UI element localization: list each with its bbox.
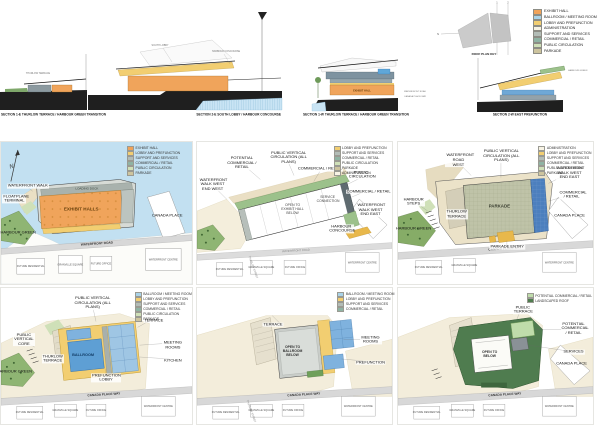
legend-label: LOBBY AND PREFUNCTION: [346, 297, 391, 302]
key-mark: 1: [496, 0, 498, 4]
legend-label: SUPPORT AND SERVICES: [136, 156, 178, 161]
callout: THURLOW TERRACE: [42, 354, 64, 363]
panel-legend: LOBBY AND PREFUNCTION SUPPORT AND SERVIC…: [334, 146, 387, 176]
legend-label: LOBBY AND PREFUNCTION: [143, 297, 188, 302]
legend-label: COMMERCIAL / RETAIL: [342, 156, 379, 161]
callout: POTENTIAL COMMERCIAL / RETAIL: [224, 156, 260, 170]
legend-swatch: [538, 171, 545, 176]
legend-label: PUBLIC CIRCULATION: [342, 161, 378, 166]
callout: COMMERCIAL / RETAIL: [346, 189, 392, 194]
legend-label: PUBLIC CIRCULATION: [547, 166, 583, 171]
plan-meeting-level: THURLOW STREET CANADA PLACE WAY FUTURE R…: [196, 287, 393, 425]
legend-label: LANDSCAPED ROOF: [535, 299, 569, 304]
legend-label: PARKADE: [544, 49, 561, 54]
sections-strip: THURLOW TERRACE SECTION 1-E THURLOW TERR…: [0, 0, 600, 140]
legend-label: ADMINISTRATION: [544, 26, 575, 31]
note: HARBOUR CONCOURSE: [212, 50, 241, 53]
legend-label: SUPPORT AND SERVICES: [143, 302, 185, 307]
room-label-parkade: PARKADE: [489, 205, 510, 210]
legend-label: SUPPORT AND SERVICES: [342, 151, 384, 156]
legend-row: PARKADE: [533, 48, 597, 54]
callout: POTENTIAL COMMERCIAL / RETAIL: [561, 322, 587, 336]
callout: PUBLIC VERTICAL CIRCULATION (ALL PLANS): [268, 151, 310, 165]
callout: WATERFRONT ROAD WEST: [445, 154, 471, 168]
callout: WATERFRONT WALK WEST END EAST: [357, 203, 385, 217]
legend-label: PARKADE: [143, 317, 159, 322]
legend-label: SUPPORT AND SERVICES: [547, 156, 589, 161]
plan-exhibit-level: N WATERFRONT ROAD FUTURE RESIDENTIAL GRA…: [0, 141, 193, 285]
callout: PREFUNCTION: [355, 361, 386, 366]
note: THURLOW TERRACE: [26, 72, 51, 75]
callout: CANADA PLACE: [151, 214, 184, 219]
key-mark: N: [437, 32, 439, 36]
callout: SERVICES: [562, 350, 584, 355]
section-2w: HARBOUR GREEN SECTION 2-W EAST PREFUNCTI…: [477, 58, 588, 117]
note: HARBOUR GREEN: [568, 69, 588, 72]
block-label: GRANVILLE SQUARE: [57, 262, 83, 266]
panel-legend: BALLROOM / MEETING ROOM LOBBY AND PREFUN…: [135, 292, 192, 322]
room-label-loading-dock: LOADING DOCK: [74, 187, 99, 190]
block-label: WATERFRONT CENTRE: [348, 260, 377, 264]
block-label: GRANVILLE SQUARE: [52, 408, 78, 412]
block-label: FUTURE OFFICE: [86, 408, 107, 412]
block-label: FUTURE OFFICE: [91, 261, 112, 265]
block-label: GRANVILLE SQUARE: [449, 408, 475, 412]
legend-label: EXHIBIT HALL: [544, 9, 569, 14]
panel-legend: POTENTIAL COMMERCIAL / RETAIL LANDSCAPED…: [527, 293, 592, 303]
legend-label: ADMINISTRATION: [547, 146, 576, 151]
legend-label: PUBLIC CIRCULATION: [544, 43, 583, 48]
callout: CANADA PLACE: [553, 214, 586, 219]
block-label: FUTURE RESIDENTIAL: [216, 267, 244, 271]
legend-swatch: [527, 298, 534, 303]
legend-label: PUBLIC CIRCULATION: [143, 312, 179, 317]
block-label: WATERFRONT CENTRE: [545, 260, 574, 264]
callout: HARBOUR GREEN: [395, 226, 432, 231]
key-mark: 2: [507, 0, 509, 4]
section-2e: SOUTH LOBBY HARBOUR CONCOURSE SECTION 2-…: [88, 12, 282, 117]
block-label: FUTURE OFFICE: [283, 408, 304, 412]
panel-legend: BALLROOM / MEETING ROOM LOBBY AND PREFUN…: [337, 292, 394, 312]
callout: HARBOUR CONCOURSE: [328, 224, 354, 233]
legend-label: PUBLIC CIRCULATION: [136, 166, 172, 171]
legend-label: BALLROOM / MEETING ROOM: [544, 15, 597, 20]
legend-label: LOBBY AND PREFUNCTION: [342, 146, 387, 151]
room-label-exhibit-halls: EXHIBIT HALLS: [64, 206, 99, 211]
callout: HARBOUR GREEN: [0, 370, 33, 375]
legend-label: COMMERCIAL / RETAIL: [547, 161, 584, 166]
section-1w: EXHIBIT HALL WATERFRONT ROAD CANADA PLAC…: [303, 58, 427, 117]
callout: PARKADE ENTRY: [489, 245, 524, 250]
block-label: FUTURE RESIDENTIAL: [212, 410, 240, 414]
legend-label: COMMERCIAL / RETAIL: [544, 37, 585, 42]
callout: TERRACE: [262, 322, 283, 327]
callout: HARBOUR STEPS: [403, 197, 425, 206]
legend-label: SUPPORT AND SERVICES: [346, 302, 388, 307]
block-label: GRANVILLE SQUARE: [451, 263, 477, 267]
legend-label: SUPPORT AND SERVICES: [544, 32, 590, 37]
room-label-service-connection: SERVICE CONNECTION: [316, 196, 340, 204]
callout: HARBOUR GREEN: [0, 231, 37, 236]
legend-swatch: [337, 307, 344, 312]
note: CANADA PLACE WAY: [404, 95, 427, 98]
legend-label: PARKADE: [136, 171, 152, 176]
room-label-open-to-below: OPEN TO BELOW: [479, 351, 501, 359]
panel-legend: ADMINISTRATION LOBBY AND PREFUNCTION SUP…: [538, 146, 591, 176]
legend-label: LOBBY AND PREFUNCTION: [547, 151, 592, 156]
callout: PUBLIC TERRACE: [513, 305, 533, 314]
block-label: GRANVILLE SQUARE: [248, 408, 274, 412]
plan-roof-level: CANADA PLACE WAY FUTURE RESIDENTIAL GRAN…: [397, 287, 594, 425]
legend-label: ADMINISTRATION: [342, 171, 371, 176]
legend-label: COMMERCIAL / RETAIL: [143, 307, 180, 312]
block-label: FUTURE OFFICE: [285, 265, 306, 269]
block-label: WATERFRONT CENTRE: [149, 257, 178, 261]
legend-label: BALLROOM / MEETING ROOM: [346, 292, 395, 297]
panel-legend: EXHIBIT HALL LOBBY AND PREFUNCTION SUPPO…: [127, 146, 180, 176]
block-label: WATERFRONT CENTRE: [545, 404, 574, 408]
legend-label: LOBBY AND PREFUNCTION: [544, 21, 593, 26]
section-caption: SECTION 1-E THURLOW TERRACE / HARBOUR GR…: [1, 113, 107, 117]
callout: PUBLIC VERTICAL CIRCULATION (ALL PLANS): [480, 149, 522, 163]
plan-parkade-level: CANADA PLACE WAY FUTURE RESIDENTIAL GRAN…: [397, 141, 594, 285]
block-label: FUTURE RESIDENTIAL: [415, 265, 443, 269]
legend-label: POTENTIAL COMMERCIAL / RETAIL: [535, 294, 592, 299]
room-note: EXHIBIT HALL: [353, 89, 371, 93]
legend-swatch: [127, 171, 134, 176]
main-legend: EXHIBIT HALL BALLROOM / MEETING ROOM LOB…: [533, 9, 597, 54]
plan-concourse-level: THURLOW STREET WATERFRONT ROAD FUTURE RE…: [196, 141, 393, 285]
block-label: FUTURE RESIDENTIAL: [17, 264, 45, 268]
block-label: WATERFRONT CENTRE: [344, 404, 373, 408]
roof-plan-key: 1 2 N ROOF PLAN KEY: [437, 0, 511, 56]
legend-swatch: [135, 317, 142, 322]
legend-label: PARKADE: [547, 171, 563, 176]
room-label-open-to-exhibit: OPEN TO EXHIBIT HALL BELOW: [278, 204, 308, 216]
callout: FLOATPLANE TERMINAL: [2, 194, 26, 203]
legend-label: PARKADE: [342, 166, 358, 171]
legend-label: COMMERCIAL / RETAIL: [346, 307, 383, 312]
note: SOUTH LOBBY: [151, 44, 168, 47]
block-label: WATERFRONT CENTRE: [144, 404, 173, 408]
section-caption: SECTION 2-W EAST PREFUNCTION: [493, 113, 548, 117]
section-caption: SECTION 1-W THURLOW TERRACE / HARBOUR GR…: [303, 113, 410, 117]
callout: MEETING ROOMS: [360, 335, 382, 344]
room-label-open-to-ballroom: OPEN TO BALLROOM BELOW: [279, 346, 307, 358]
callout: MEETING ROOMS: [162, 341, 184, 350]
block-label: FUTURE RESIDENTIAL: [413, 410, 441, 414]
block-label: GRANVILLE SQUARE: [248, 265, 274, 269]
section-caption: SECTION 2-E SOUTH LOBBY / HARBOUR CONCOU…: [196, 113, 281, 117]
callout: KITCHEN: [163, 359, 183, 364]
callout: PUBLIC VERTICAL CORE: [13, 333, 35, 347]
legend-swatch: [533, 48, 542, 54]
legend-label: LOBBY AND PREFUNCTION: [136, 151, 181, 156]
callout: WATERFRONT WALK: [7, 184, 49, 189]
callout: WATERFRONT WALK WEST END WEST: [199, 178, 227, 192]
presentation-board: THURLOW TERRACE SECTION 1-E THURLOW TERR…: [0, 0, 600, 426]
block-label: FUTURE RESIDENTIAL: [16, 410, 44, 414]
block-label: FUTURE OFFICE: [484, 408, 505, 412]
legend-label: BALLROOM / MEETING ROOM: [143, 292, 192, 297]
plan-ballroom-level: CANADA PLACE WAY FUTURE RESIDENTIAL GRAN…: [0, 287, 193, 425]
room-label-ballroom: BALLROOM: [72, 353, 94, 357]
legend-label: COMMERCIAL / RETAIL: [136, 161, 173, 166]
callout: PREFUNCTION LOBBY: [91, 373, 121, 382]
callout: PUBLIC VERTICAL CIRCULATION (ALL PLANS): [72, 296, 114, 310]
legend-swatch: [334, 171, 341, 176]
callout: COMMERCIAL / RETAIL: [559, 190, 585, 199]
callout: CANADA PLACE: [555, 362, 588, 367]
callout: THURLOW TERRACE: [446, 210, 468, 219]
roof-key-caption: ROOF PLAN KEY: [472, 52, 497, 56]
note: WATERFRONT ROAD: [404, 90, 426, 93]
legend-label: EXHIBIT HALL: [136, 146, 159, 151]
